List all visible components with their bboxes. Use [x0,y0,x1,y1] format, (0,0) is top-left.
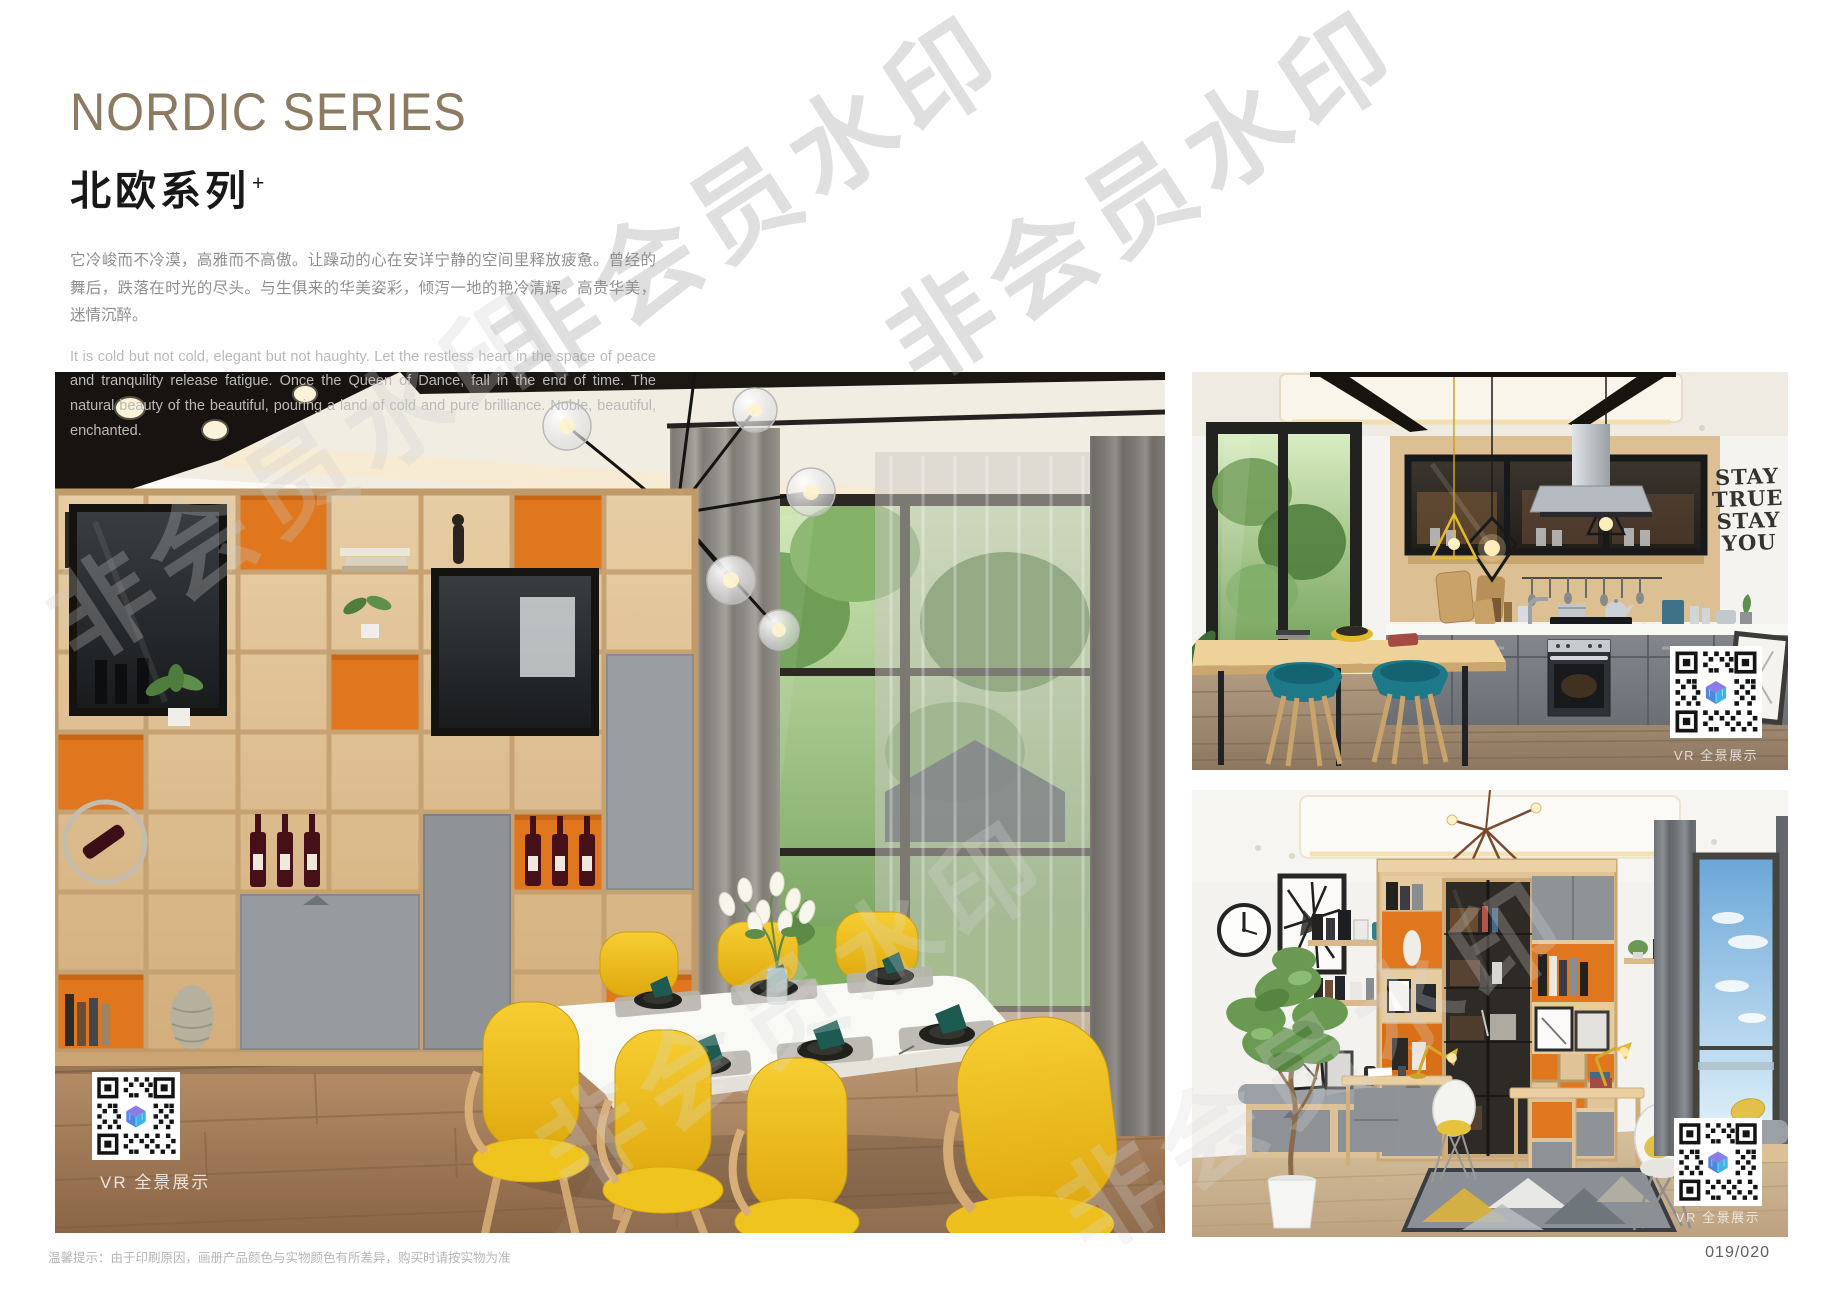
series-title-en: NORDIC SERIES [70,82,609,143]
study-shelving-unit [1378,860,1616,1160]
vr-label-kitchen: VR 全景展示 [1674,748,1758,763]
series-title-cn-text: 北欧系列 [70,168,250,214]
photo-study: VR 全景展示 [1192,790,1788,1237]
vr-label-dining: VR 全景展示 [100,1173,210,1192]
wall-art-stay-true: STAY TRUE STAY YOU [1711,463,1786,556]
urn [170,985,214,1049]
photo-dining-room: VR 全景展示 [55,372,1165,1233]
cooktop [1550,617,1632,625]
series-description-en: It is cold but not cold, elegant but not… [70,345,656,444]
study-window [1654,816,1788,1162]
series-title-superscript: + [252,172,268,195]
photo-kitchen: STAY TRUE STAY YOU VR 全景展示 [1192,372,1788,770]
vr-label-study: VR 全景展示 [1676,1210,1760,1225]
page-number: 019/020 [1705,1244,1770,1262]
series-title-cn: 北欧系列+ [70,157,656,217]
wall-clock [1219,905,1269,955]
header: NORDIC SERIES 北欧系列+ 它冷峻而不冷漠，高雅而不高傲。让躁动的心… [70,82,656,443]
area-rug [1404,1170,1674,1230]
series-description-cn: 它冷峻而不冷漠，高雅而不高傲。让躁动的心在安详宁静的空间里释放疲惫。曾经的舞后，… [70,247,656,330]
oven [1548,640,1610,716]
dining-shelving [55,492,695,1074]
kitchen-scene: STAY TRUE STAY YOU VR 全景展示 [1192,372,1788,770]
wall-art-line-4: YOU [1721,529,1777,556]
flat-books [340,548,410,572]
footer-disclaimer: 温馨提示：由于印刷原因，画册产品颜色与实物颜色有所差异，购买时请按实物为准 [48,1247,511,1266]
study-scene: VR 全景展示 [1192,790,1788,1237]
countertop [1386,624,1788,635]
statue [452,514,464,564]
watermark: 非会员水印 [853,0,1426,413]
dining-room-scene: VR 全景展示 [55,372,1165,1233]
